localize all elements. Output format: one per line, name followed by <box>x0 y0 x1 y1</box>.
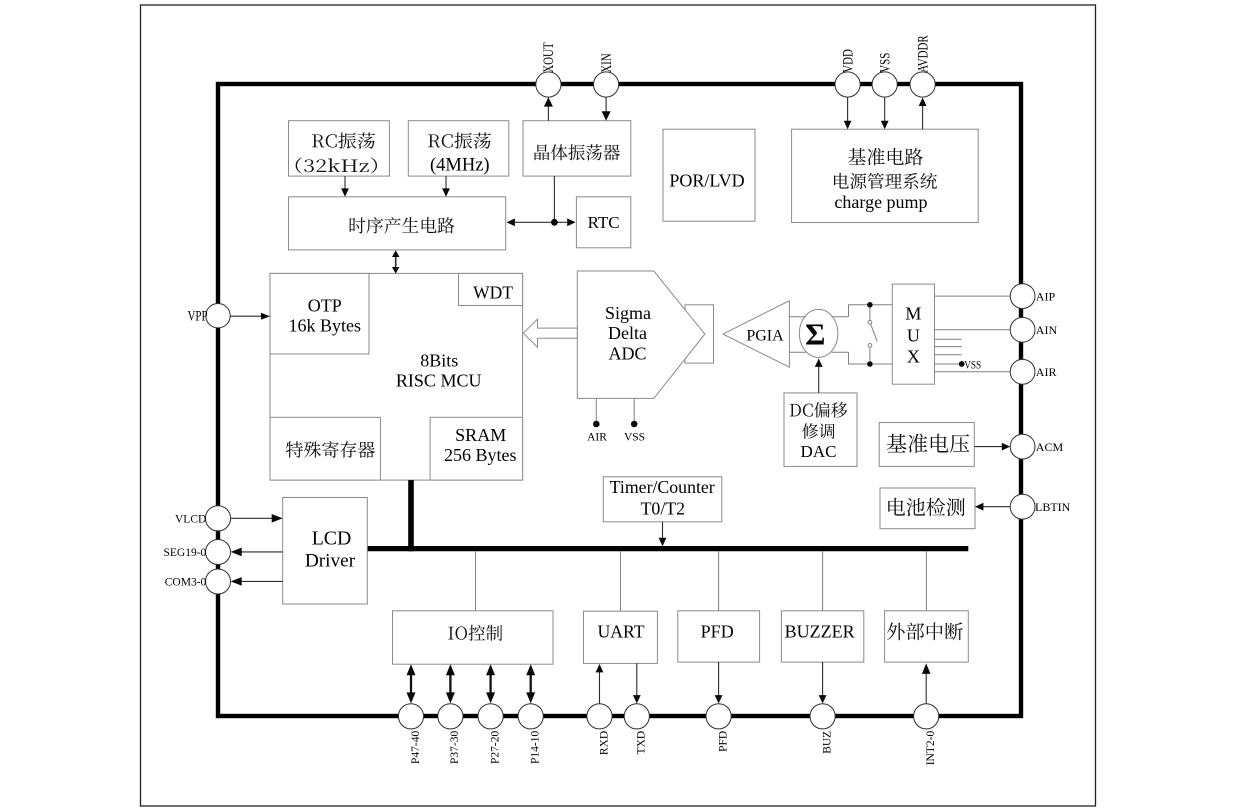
svg-text:P47-40: P47-40 <box>410 731 422 764</box>
svg-text:16k Bytes: 16k Bytes <box>289 316 362 336</box>
svg-text:charge pump: charge pump <box>834 192 927 212</box>
svg-text:UART: UART <box>597 621 644 641</box>
svg-text:Σ: Σ <box>805 317 825 352</box>
svg-text:TXD: TXD <box>636 731 648 755</box>
svg-text:PGIA: PGIA <box>746 328 784 345</box>
svg-text:VLCD: VLCD <box>175 514 206 526</box>
svg-text:AIR: AIR <box>587 431 607 443</box>
svg-text:LCD: LCD <box>312 527 352 549</box>
svg-text:PFD: PFD <box>717 731 729 752</box>
svg-text:VSS: VSS <box>624 431 645 443</box>
svg-text:AIN: AIN <box>1036 323 1058 337</box>
svg-text:VSS: VSS <box>876 53 893 73</box>
svg-text:(4MHz): (4MHz) <box>430 156 490 176</box>
svg-text:AIR: AIR <box>1036 365 1057 379</box>
svg-text:OTP: OTP <box>308 295 342 315</box>
svg-text:VDD: VDD <box>839 49 856 73</box>
svg-text:Driver: Driver <box>305 550 356 571</box>
svg-text:SEG19-0: SEG19-0 <box>163 547 206 559</box>
svg-text:INT2-0: INT2-0 <box>925 731 937 766</box>
svg-text:AIP: AIP <box>1036 289 1056 303</box>
svg-text:Delta: Delta <box>608 323 647 343</box>
svg-text:RXD: RXD <box>598 731 610 755</box>
svg-text:AVDDR: AVDDR <box>914 35 931 73</box>
svg-text:ADC: ADC <box>608 344 646 364</box>
svg-text:ACM: ACM <box>1036 440 1064 454</box>
svg-text:COM3-0: COM3-0 <box>165 577 207 589</box>
svg-text:256 Bytes: 256 Bytes <box>444 445 517 465</box>
svg-text:VSS: VSS <box>964 357 981 371</box>
svg-text:SRAM: SRAM <box>455 425 506 445</box>
svg-text:T0/T2: T0/T2 <box>641 499 685 519</box>
svg-text:VPP: VPP <box>188 307 208 324</box>
svg-text:BUZZER: BUZZER <box>785 622 855 642</box>
svg-text:BUZ: BUZ <box>821 731 833 754</box>
svg-text:XIN: XIN <box>597 53 614 73</box>
svg-text:8Bits: 8Bits <box>420 350 458 370</box>
svg-text:LBTIN: LBTIN <box>1035 500 1071 514</box>
svg-text:DAC: DAC <box>801 442 837 461</box>
svg-text:P37-30: P37-30 <box>449 731 461 764</box>
svg-text:P14-10: P14-10 <box>530 731 542 764</box>
svg-text:P27-20: P27-20 <box>489 731 501 764</box>
svg-text:Sigma: Sigma <box>605 303 651 323</box>
svg-text:Timer/Counter: Timer/Counter <box>610 477 715 497</box>
svg-text:X: X <box>907 347 920 367</box>
svg-text:RISC MCU: RISC MCU <box>396 370 482 390</box>
svg-text:POR/LVD: POR/LVD <box>669 170 744 190</box>
svg-text:XOUT: XOUT <box>539 42 556 72</box>
svg-text:RTC: RTC <box>588 213 620 232</box>
svg-text:U: U <box>907 325 920 345</box>
svg-text:PFD: PFD <box>701 622 734 642</box>
svg-text:M: M <box>905 304 921 324</box>
svg-text:WDT: WDT <box>473 282 513 302</box>
